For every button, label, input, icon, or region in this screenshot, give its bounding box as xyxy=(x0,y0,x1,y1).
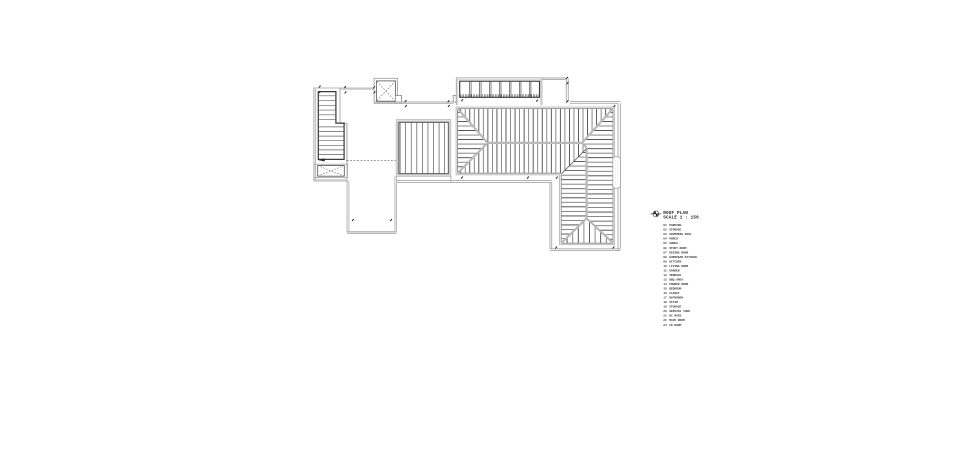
svg-text:18: 18 xyxy=(663,301,667,304)
svg-text:21: 21 xyxy=(663,315,667,318)
svg-text:EUROPEAN KITCHEN: EUROPEAN KITCHEN xyxy=(669,256,697,259)
svg-text:19: 19 xyxy=(663,306,667,309)
svg-text:09: 09 xyxy=(663,260,667,263)
svg-text:03: 03 xyxy=(663,233,667,236)
svg-text:SWIMMING POOL: SWIMMING POOL xyxy=(669,233,692,236)
svg-text:08: 08 xyxy=(663,256,667,259)
svg-text:23: 23 xyxy=(663,324,667,327)
svg-text:20: 20 xyxy=(663,310,667,313)
svg-text:SHOES: SHOES xyxy=(669,242,678,245)
svg-text:STORAGE: STORAGE xyxy=(669,306,681,309)
svg-text:TERRACE: TERRACE xyxy=(669,274,681,277)
svg-text:05: 05 xyxy=(663,242,667,245)
svg-text:CD ROOM: CD ROOM xyxy=(669,324,681,327)
svg-text:GARDEN: GARDEN xyxy=(669,269,680,272)
svg-text:KITCHEN: KITCHEN xyxy=(669,260,681,263)
svg-text:WC MAID: WC MAID xyxy=(669,315,681,318)
svg-text:BEDROOM: BEDROOM xyxy=(669,288,681,291)
svg-text:STAIR: STAIR xyxy=(669,301,678,304)
svg-text:22: 22 xyxy=(663,319,667,322)
svg-text:PARKING: PARKING xyxy=(669,224,681,227)
svg-text:17: 17 xyxy=(663,297,667,300)
svg-text:CLOSET: CLOSET xyxy=(669,292,680,295)
svg-text:MAID ROOM: MAID ROOM xyxy=(669,319,685,322)
svg-text:STORAGE: STORAGE xyxy=(669,229,681,232)
svg-text:02: 02 xyxy=(663,229,667,232)
svg-text:13: 13 xyxy=(663,279,667,282)
svg-text:STUDY ROOM: STUDY ROOM xyxy=(669,247,686,250)
svg-text:SCALE 1 : 150: SCALE 1 : 150 xyxy=(663,215,699,220)
svg-text:15: 15 xyxy=(663,288,667,291)
svg-text:04: 04 xyxy=(663,238,667,241)
svg-text:10: 10 xyxy=(663,265,667,268)
svg-text:16: 16 xyxy=(663,292,667,295)
svg-text:SERVICE YARD: SERVICE YARD xyxy=(669,310,690,313)
svg-text:LIVING ROOM: LIVING ROOM xyxy=(669,265,688,268)
svg-text:06: 06 xyxy=(663,247,667,250)
svg-text:12: 12 xyxy=(663,274,667,277)
svg-text:BBQ AREA: BBQ AREA xyxy=(669,279,683,282)
svg-text:DINING ROOM: DINING ROOM xyxy=(669,251,688,254)
svg-text:11: 11 xyxy=(663,269,667,272)
svg-text:BATHROOM: BATHROOM xyxy=(669,297,683,300)
svg-text:14: 14 xyxy=(663,283,667,286)
svg-text:POWDER ROOM: POWDER ROOM xyxy=(669,283,688,286)
svg-text:07: 07 xyxy=(663,251,667,254)
svg-text:01: 01 xyxy=(663,224,667,227)
svg-text:PORCH: PORCH xyxy=(669,238,678,241)
